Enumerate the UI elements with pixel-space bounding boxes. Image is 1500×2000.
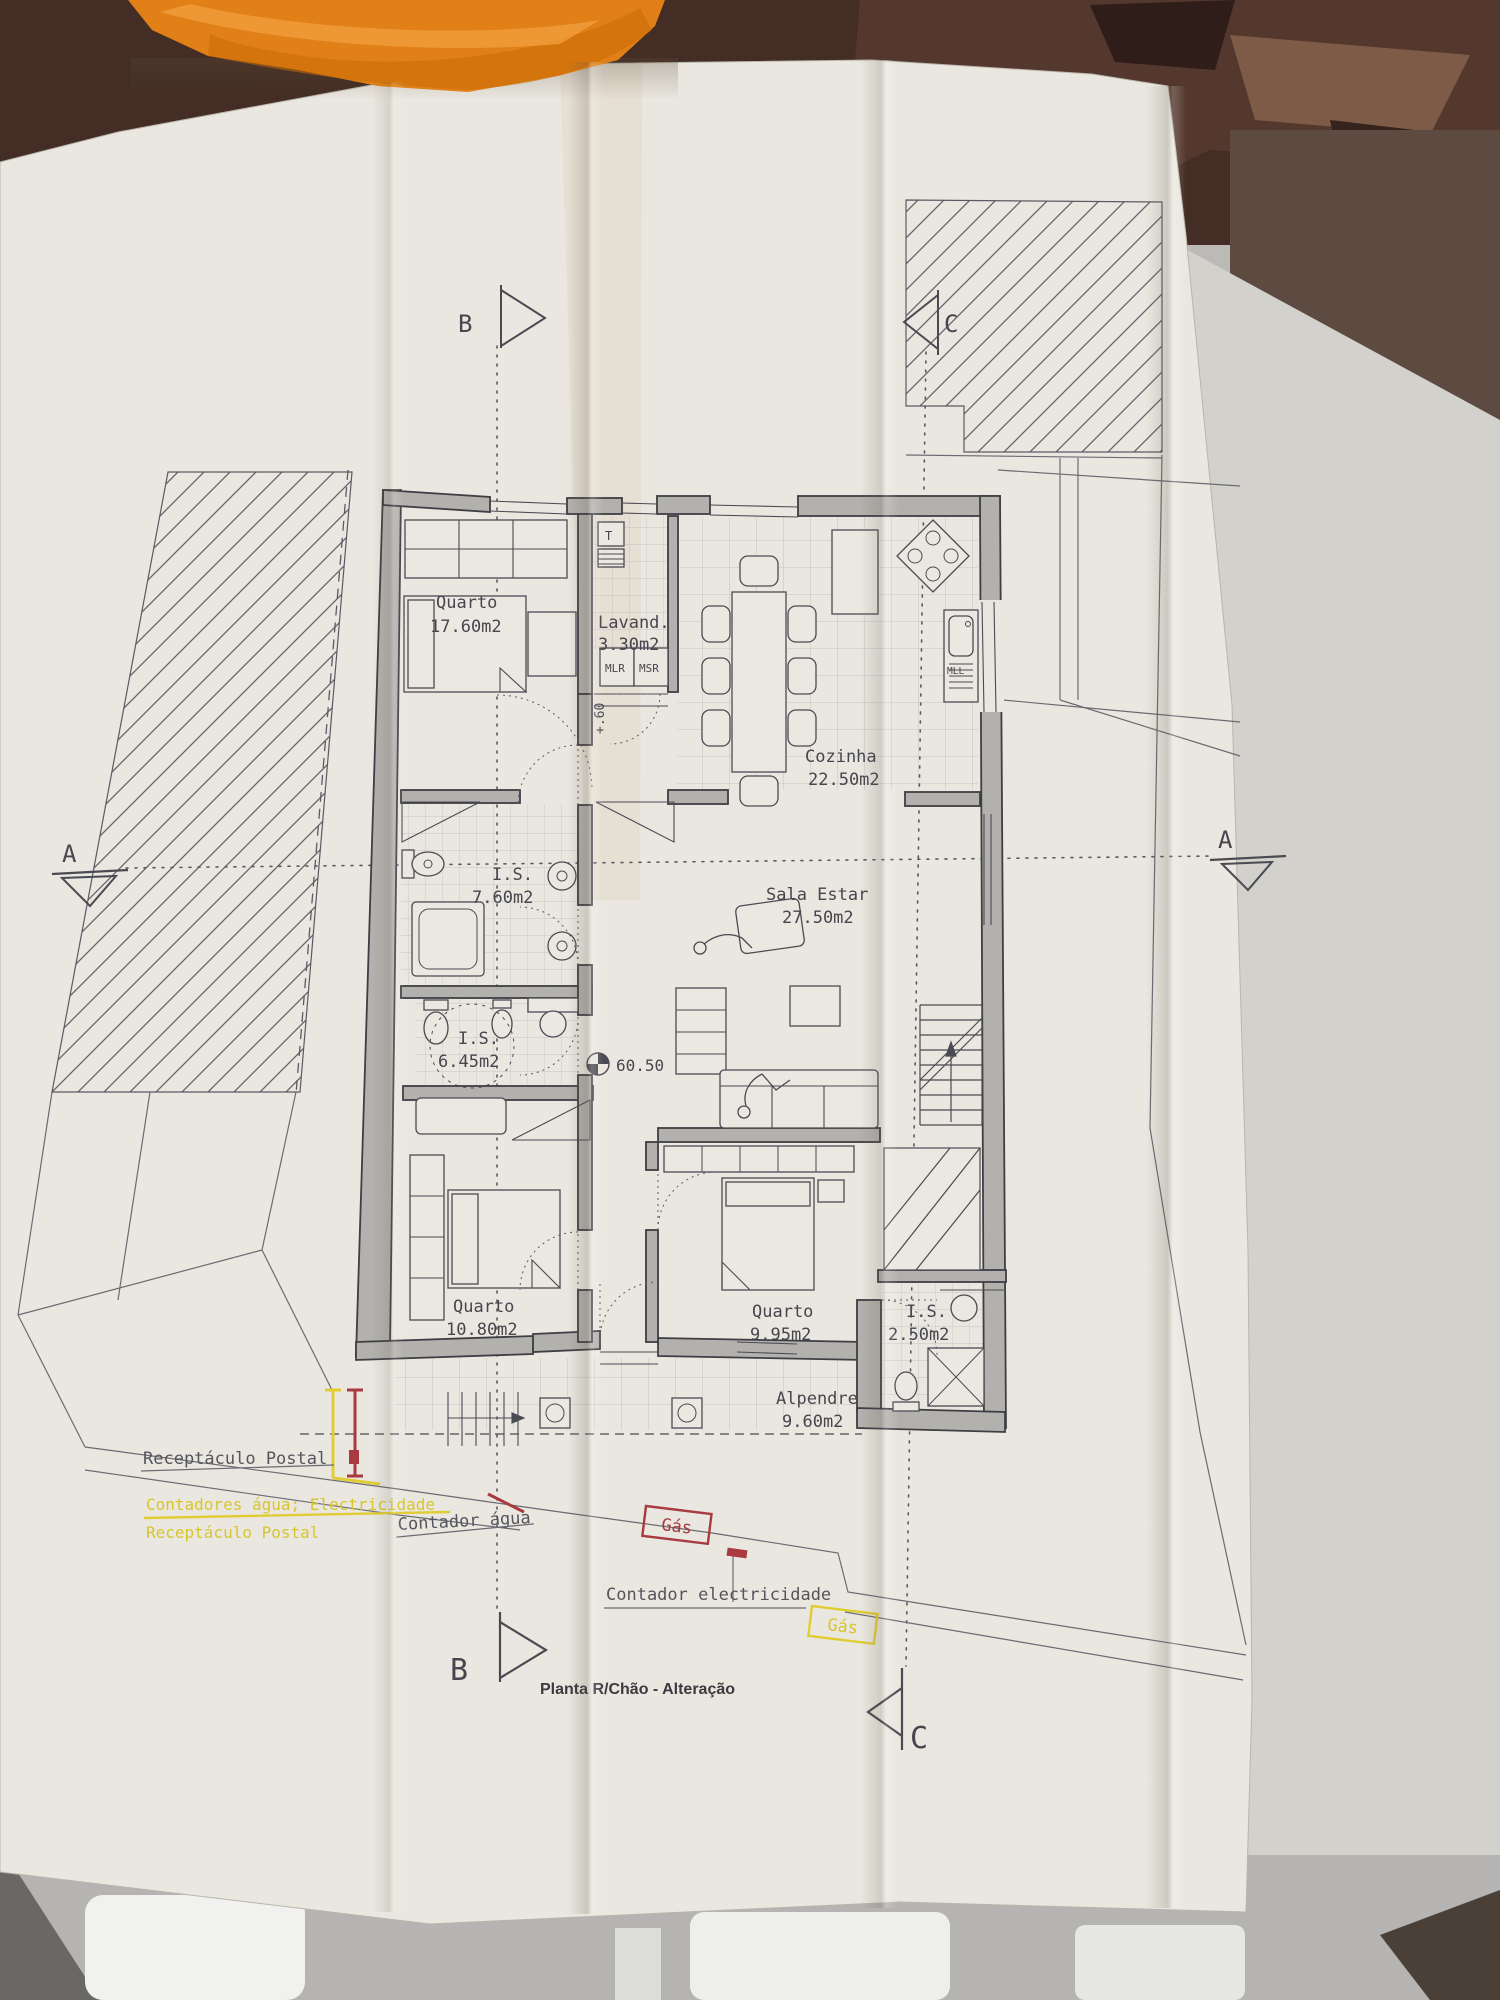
room-label-quarto2: Quarto <box>453 1297 514 1317</box>
room-area-sala: 27.50m2 <box>782 908 854 928</box>
room-area-cozinha: 22.50m2 <box>808 770 880 790</box>
step-level-value: +.60 <box>593 703 608 734</box>
room-label-is3: I.S. <box>906 1302 947 1322</box>
label-mll-sink: MLL <box>947 666 964 677</box>
section-letter: A <box>62 840 77 868</box>
plan-title: Planta R/Chão - Alteração <box>540 1681 735 1698</box>
room-area-is1: 7.60m2 <box>472 888 533 908</box>
room-area-quarto2: 10.80m2 <box>446 1320 518 1340</box>
svg-text:Gás: Gás <box>660 1515 693 1539</box>
svg-text:Contadores água; Electricidade: Contadores água; Electricidade <box>146 1495 435 1514</box>
room-area-quarto3: 9.95m2 <box>750 1325 811 1345</box>
photo-of-floor-plan: B C A A B C 60.50 + <box>0 0 1500 2000</box>
svg-text:Contador electricidade: Contador electricidade <box>606 1585 831 1605</box>
floor-plan-photo: B C A A B C 60.50 + <box>0 0 1500 2000</box>
label-t-waterheater: T <box>605 529 612 543</box>
room-label-cozinha: Cozinha <box>805 747 877 767</box>
svg-text:Gás: Gás <box>826 1615 859 1639</box>
section-letter: B <box>450 1653 468 1688</box>
room-label-is1: I.S. <box>492 865 533 885</box>
annotation-postal-existing: Receptáculo Postal <box>141 1449 334 1471</box>
annotation-electricity-meter: Contador electricidade <box>604 1585 831 1608</box>
label-mlr-washer: MLR <box>605 662 625 675</box>
room-label-quarto3: Quarto <box>752 1302 813 1322</box>
room-label-quarto1: Quarto <box>436 593 497 613</box>
section-letter: C <box>944 310 958 338</box>
room-label-alpendre: Alpendre <box>776 1389 858 1409</box>
annotation-postal-new: Receptáculo Postal <box>146 1523 319 1542</box>
section-letter: A <box>1218 826 1233 854</box>
room-label-is2: I.S. <box>458 1029 499 1049</box>
section-letter: C <box>910 1721 928 1756</box>
room-area-quarto1: 17.60m2 <box>430 617 502 637</box>
room-area-is3: 2.50m2 <box>888 1325 949 1345</box>
chair-part <box>85 1895 305 2000</box>
chair-part <box>690 1912 950 2000</box>
room-area-is2: 6.45m2 <box>438 1052 499 1072</box>
storage-closet <box>884 1148 980 1270</box>
floor-level-value: 60.50 <box>616 1056 664 1075</box>
room-label-sala: Sala Estar <box>766 885 868 905</box>
label-msr-dryer: MSR <box>639 662 659 675</box>
room-label-lavandaria: Lavand. <box>598 613 670 633</box>
room-area-alpendre: 9.60m2 <box>782 1412 843 1432</box>
room-area-lavandaria: 3.30m2 <box>598 635 659 655</box>
section-letter: B <box>458 310 472 338</box>
